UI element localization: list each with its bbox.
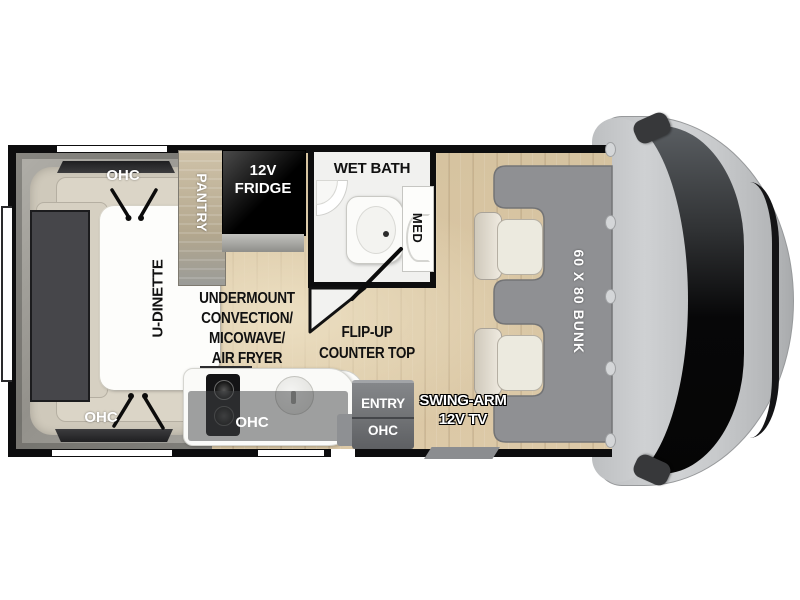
pointer-dot [128, 393, 134, 399]
label-ohc-kitchen: OHC [225, 414, 279, 433]
pointer-dot [142, 393, 148, 399]
label-bunk: 60 X 80 BUNK [569, 222, 587, 382]
label-pantry: PANTRY [192, 155, 210, 251]
label-swing-arm: SWING-ARM 12V TV [393, 391, 533, 429]
label-swing-arm-line2: 12V TV [393, 410, 533, 429]
label-fridge-line2: FRIDGE [222, 180, 304, 198]
label-wet-bath: WET BATH [312, 160, 432, 179]
label-flip-up-line2: COUNTER TOP [299, 343, 435, 364]
label-med: MED [409, 186, 425, 270]
pointer-dot [138, 215, 144, 221]
label-flip-up-line1: FLIP-UP [299, 322, 435, 343]
label-ohc-top: OHC [96, 167, 150, 186]
label-ohc-bottom: OHC [74, 409, 128, 428]
ohc-pointer-line [145, 398, 163, 428]
rv-floor-plan: OHC OHC U-DINETTE PANTRY 12V FRIDGE WET … [0, 0, 800, 600]
label-undermount-line1: UNDERMOUNT [162, 289, 332, 309]
pointer-dot [126, 215, 132, 221]
bath-door-swing-line [352, 249, 401, 299]
label-swing-arm-line1: SWING-ARM [393, 391, 533, 410]
annotation-lines [0, 0, 800, 600]
ohc-pointer-line [112, 190, 128, 216]
label-fridge: 12V FRIDGE [222, 162, 304, 198]
label-fridge-line1: 12V [222, 162, 304, 180]
label-flip-up: FLIP-UP COUNTER TOP [299, 322, 435, 364]
